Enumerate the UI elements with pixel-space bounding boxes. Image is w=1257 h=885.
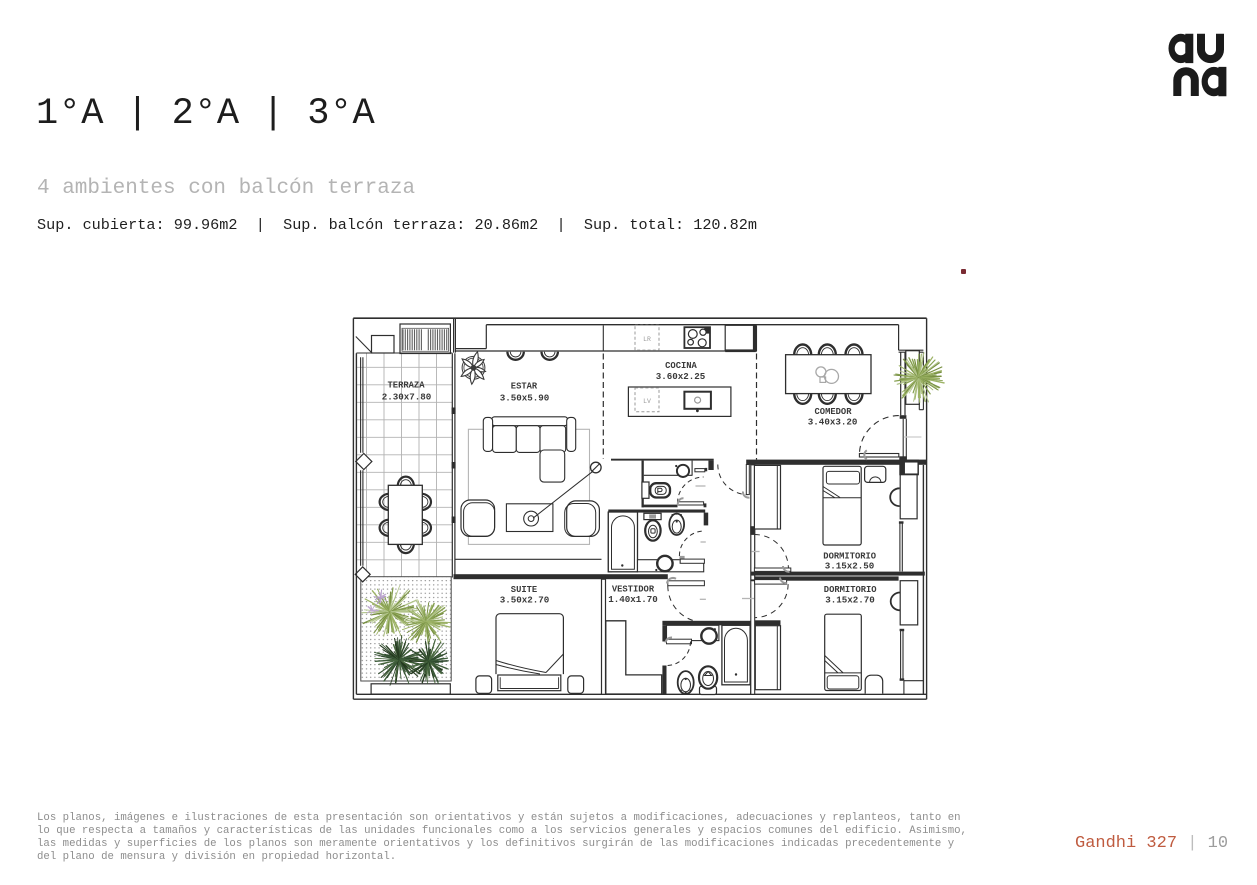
svg-text:DORMITORIO: DORMITORIO (824, 585, 877, 595)
svg-text:VESTIDOR: VESTIDOR (612, 585, 655, 595)
svg-text:TERRAZA: TERRAZA (388, 381, 426, 391)
svg-text:3.40x3.20: 3.40x3.20 (808, 417, 858, 428)
svg-text:LR: LR (643, 336, 651, 343)
svg-text:COMEDOR: COMEDOR (815, 407, 853, 417)
svg-text:3.50x2.70: 3.50x2.70 (500, 595, 550, 606)
svg-text:ESTAR: ESTAR (511, 382, 538, 392)
svg-text:1.40x1.70: 1.40x1.70 (608, 594, 658, 605)
svg-text:COCINA: COCINA (665, 361, 697, 371)
svg-text:3.15x2.50: 3.15x2.50 (825, 561, 875, 572)
svg-text:2.30x7.80: 2.30x7.80 (382, 392, 432, 403)
svg-text:3.15x2.70: 3.15x2.70 (825, 595, 875, 606)
svg-text:SUITE: SUITE (511, 585, 537, 595)
svg-text:3.50x5.90: 3.50x5.90 (500, 393, 550, 404)
svg-text:LV: LV (643, 398, 651, 405)
svg-text:3.60x2.25: 3.60x2.25 (656, 371, 706, 382)
